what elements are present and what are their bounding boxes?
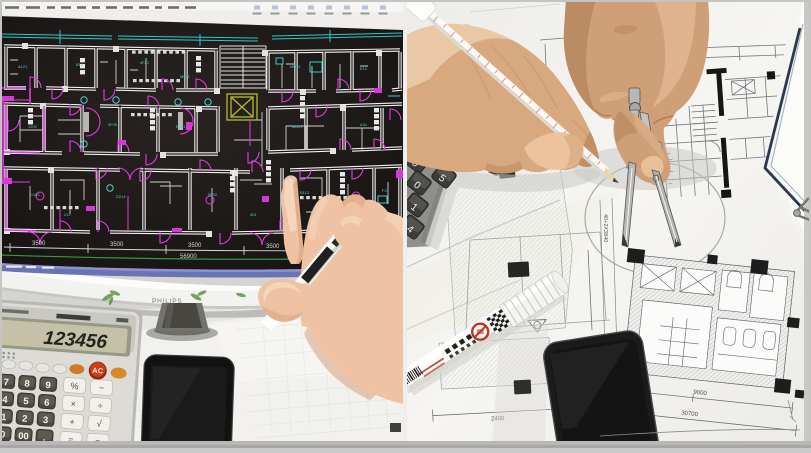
svg-text:B112: B112 <box>300 190 310 195</box>
svg-text:1202: 1202 <box>28 124 38 129</box>
svg-text:AC: AC <box>92 366 104 376</box>
svg-text:D214: D214 <box>116 194 126 199</box>
svg-text:7: 7 <box>3 377 9 388</box>
svg-text:8: 8 <box>24 379 30 390</box>
svg-text:MD21: MD21 <box>292 124 303 129</box>
svg-text:E12: E12 <box>360 66 368 71</box>
svg-text:M021: M021 <box>180 74 191 79</box>
svg-text:6: 6 <box>44 397 50 408</box>
svg-text:B051: B051 <box>176 124 186 129</box>
svg-text:3F05: 3F05 <box>108 122 118 127</box>
svg-text:A121: A121 <box>18 64 28 69</box>
svg-text:212: 212 <box>64 212 71 217</box>
svg-text:F21: F21 <box>382 188 390 193</box>
svg-text:9: 9 <box>45 380 51 391</box>
svg-text:401: 401 <box>250 212 257 217</box>
svg-text:+: + <box>69 417 75 427</box>
svg-text:2: 2 <box>22 413 28 424</box>
svg-text:%: % <box>70 381 79 392</box>
svg-text:−: − <box>99 383 105 393</box>
svg-text:40+2X3840: 40+2X3840 <box>602 214 608 242</box>
svg-text:00: 00 <box>18 431 29 443</box>
svg-text:÷: ÷ <box>97 401 103 411</box>
svg-text:×: × <box>70 399 76 409</box>
svg-text:3500: 3500 <box>266 244 280 250</box>
svg-text:123456: 123456 <box>42 328 108 353</box>
svg-text:3500: 3500 <box>110 242 124 248</box>
svg-text:C102: C102 <box>30 192 40 197</box>
svg-text:3: 3 <box>43 415 49 426</box>
svg-text:B12: B12 <box>76 62 84 67</box>
svg-text:3500: 3500 <box>188 243 202 249</box>
svg-text:MD21: MD21 <box>290 64 301 69</box>
svg-text:3500: 3500 <box>32 241 46 247</box>
svg-text:√: √ <box>96 419 102 429</box>
svg-text:A31: A31 <box>360 122 368 127</box>
svg-text:5F02: 5F02 <box>208 192 218 197</box>
svg-text:4F21: 4F21 <box>140 60 150 65</box>
